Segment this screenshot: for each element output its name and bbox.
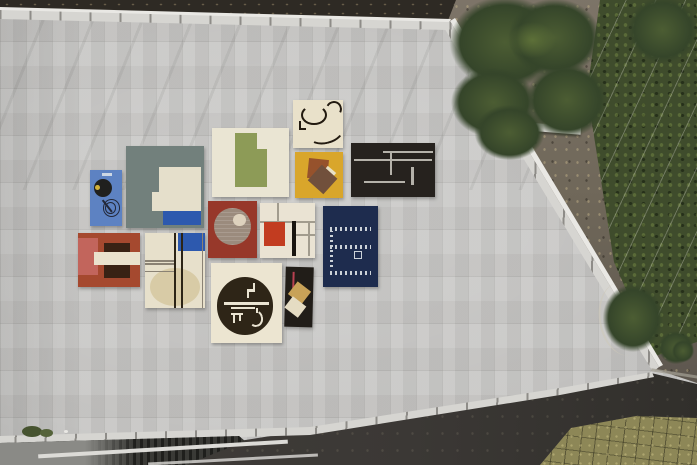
rug-red-blocks bbox=[78, 233, 140, 287]
rug-glyph-circle bbox=[211, 263, 282, 343]
glyph-line bbox=[231, 307, 255, 309]
rug-mondrian bbox=[260, 203, 315, 258]
brown-block-top bbox=[104, 243, 130, 252]
small-arc bbox=[324, 99, 344, 120]
yellow-dot-shape bbox=[95, 185, 100, 190]
aerial-rooftop-photo bbox=[0, 0, 697, 465]
glyph-hook-tail bbox=[256, 308, 258, 313]
parapet-white-dot bbox=[64, 430, 68, 433]
tree-canopy-highlight bbox=[500, 15, 565, 65]
blue-bar bbox=[163, 211, 201, 225]
rug-label-patch bbox=[102, 173, 112, 176]
rug-black-grid bbox=[351, 143, 435, 197]
parapet-plant bbox=[22, 426, 42, 437]
glyph-line bbox=[224, 302, 269, 305]
horizontal-rule bbox=[145, 260, 174, 262]
glyph-pi bbox=[239, 314, 241, 321]
rug-rust-circle bbox=[208, 201, 257, 258]
rug-slate-field bbox=[126, 146, 204, 228]
taupe-circle bbox=[214, 208, 251, 246]
cream-panel bbox=[159, 167, 201, 210]
grid-line bbox=[354, 159, 433, 161]
cream-band bbox=[94, 252, 140, 265]
rug-blue-spiral bbox=[90, 170, 122, 226]
grid-line bbox=[364, 181, 404, 183]
bracket-horizontal bbox=[299, 128, 306, 130]
tree-canopy bbox=[462, 95, 557, 170]
red-square bbox=[264, 222, 284, 246]
cream-tab bbox=[152, 192, 159, 211]
brown-block-bottom bbox=[104, 265, 130, 279]
vertical-rule bbox=[202, 233, 203, 308]
glyph-pi bbox=[233, 314, 235, 323]
rug-tilted-tiles bbox=[284, 267, 314, 328]
horizontal-rule bbox=[145, 263, 174, 265]
dash-row bbox=[330, 227, 372, 231]
dash-row bbox=[330, 245, 372, 249]
grid-bar bbox=[390, 152, 392, 175]
green-rectangle bbox=[235, 133, 257, 188]
bush bbox=[668, 336, 697, 366]
cream-moon bbox=[233, 214, 246, 227]
dash-column bbox=[330, 231, 333, 267]
dash-row bbox=[330, 271, 372, 275]
black-bar bbox=[292, 221, 296, 256]
thin-line bbox=[277, 203, 279, 221]
grid-bar bbox=[411, 167, 413, 185]
glyph-zigzag bbox=[247, 291, 249, 298]
rug-yellow-squares bbox=[295, 152, 343, 198]
vertical-rule bbox=[181, 233, 183, 308]
vertical-rule bbox=[174, 233, 176, 308]
thin-line bbox=[308, 221, 310, 256]
rug-green-step bbox=[212, 128, 289, 197]
rug-navy-script bbox=[323, 206, 378, 287]
green-step-extension bbox=[257, 149, 267, 188]
parapet-plant bbox=[40, 429, 53, 437]
horizontal-rule bbox=[145, 271, 174, 273]
rug-column-circle bbox=[145, 233, 205, 308]
rug-arc-lines bbox=[293, 100, 343, 148]
square-emblem bbox=[354, 251, 362, 259]
thin-line bbox=[296, 234, 315, 236]
